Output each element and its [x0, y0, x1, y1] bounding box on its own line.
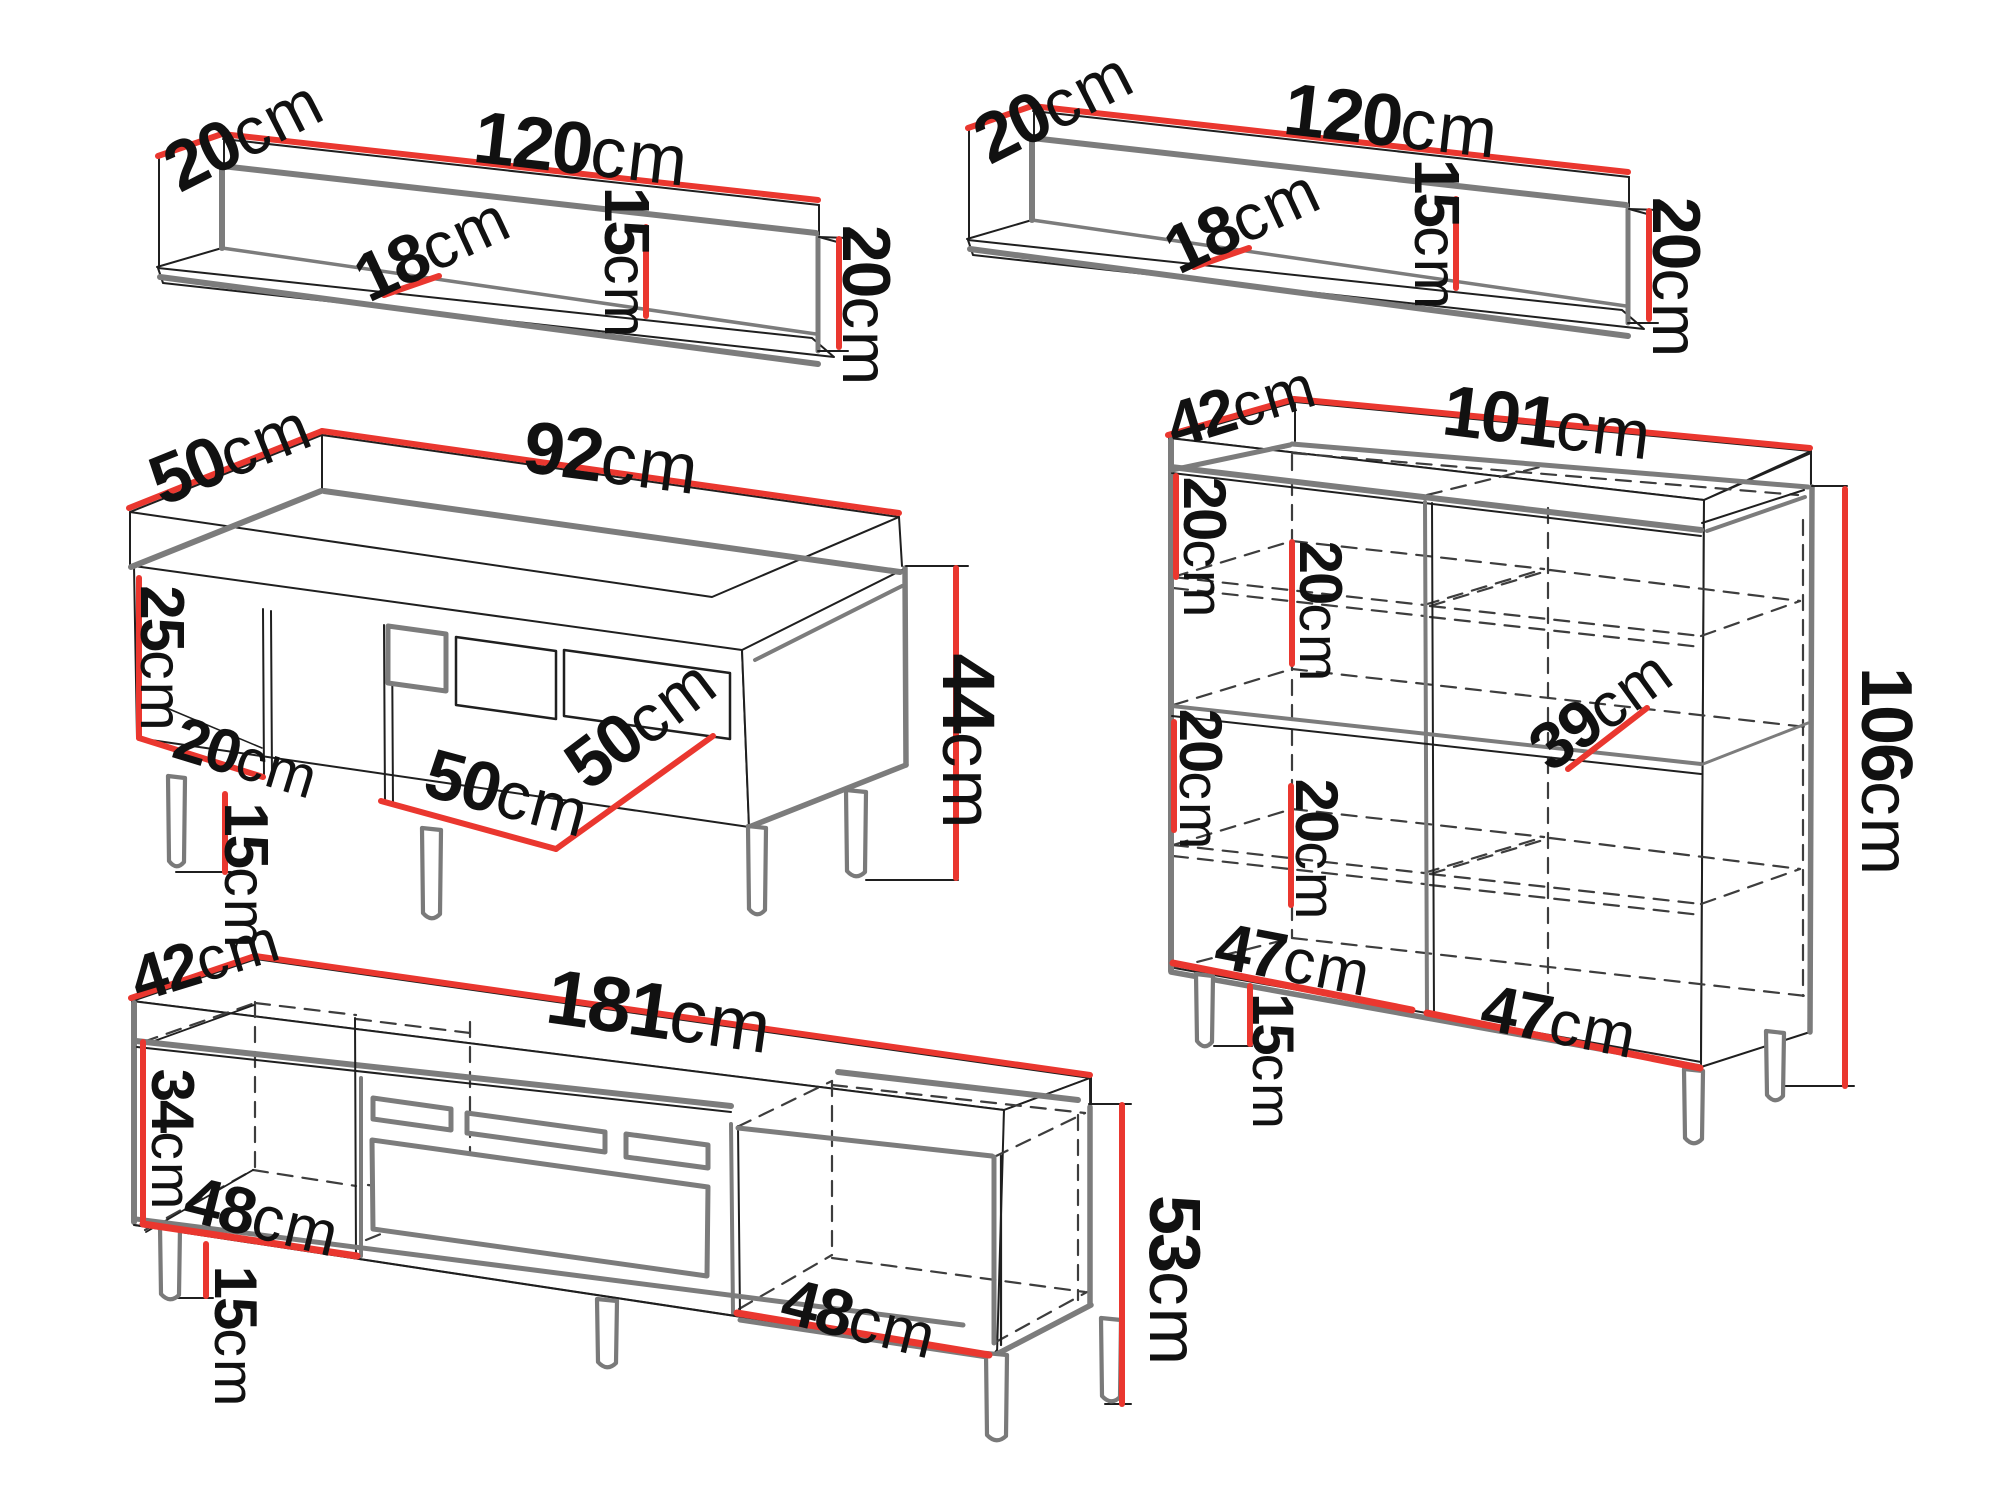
svg-text:15cm: 15cm: [1401, 159, 1473, 312]
svg-text:106cm: 106cm: [1846, 667, 1926, 877]
svg-text:44cm: 44cm: [927, 654, 1010, 831]
svg-text:15cm: 15cm: [202, 1266, 269, 1409]
svg-text:53cm: 53cm: [1134, 1195, 1214, 1367]
svg-text:20cm: 20cm: [828, 225, 904, 387]
svg-text:20cm: 20cm: [1287, 541, 1354, 684]
svg-text:15cm: 15cm: [1240, 993, 1305, 1131]
svg-text:20cm: 20cm: [1167, 709, 1234, 852]
svg-text:20cm: 20cm: [1283, 779, 1350, 922]
svg-text:15cm: 15cm: [591, 187, 663, 340]
svg-text:20cm: 20cm: [1638, 197, 1714, 359]
svg-text:20cm: 20cm: [1171, 477, 1238, 620]
